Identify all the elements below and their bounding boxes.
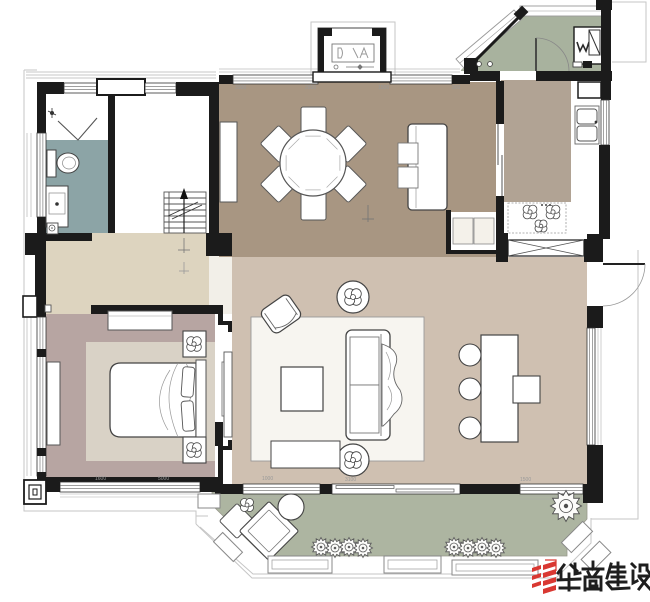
svg-text:2850: 2850: [305, 85, 316, 91]
svg-text:1500: 1500: [520, 477, 531, 483]
svg-text:1000: 1000: [262, 476, 273, 482]
svg-text:3100: 3100: [345, 477, 356, 483]
svg-text:3900: 3900: [235, 85, 246, 91]
svg-text:1600: 1600: [95, 476, 106, 482]
svg-text:5000: 5000: [158, 476, 169, 482]
svg-text:900: 900: [452, 85, 461, 91]
svg-text:1500: 1500: [378, 85, 389, 91]
